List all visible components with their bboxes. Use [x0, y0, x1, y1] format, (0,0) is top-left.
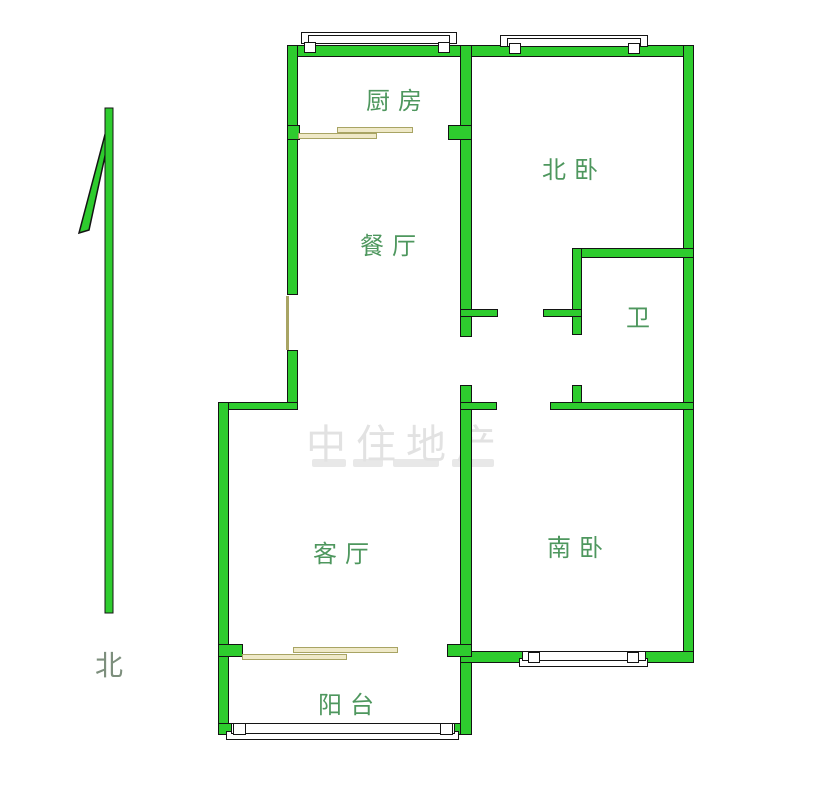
watermark-subtext-bar — [353, 459, 383, 467]
floor-plan: 中住地产 — [0, 0, 814, 800]
watermark-subtext-bar — [312, 459, 346, 467]
wall-north-bedroom-door-jamb-left — [460, 309, 498, 317]
north-arrow — [70, 100, 130, 620]
window-pane — [231, 723, 455, 734]
window-post — [438, 42, 450, 53]
window-post — [627, 652, 639, 663]
wall-left-lower — [218, 402, 229, 735]
wall-central-upper — [460, 45, 472, 337]
wall-hall-south-right — [550, 402, 694, 410]
wall-left-upper — [287, 45, 298, 295]
room-label-dining: 餐厅 — [360, 233, 424, 261]
window-post — [509, 43, 521, 54]
kitchen-sliding-door-lower — [298, 133, 377, 139]
wall-bathroom-west — [572, 248, 582, 335]
north-arrow-shaft — [105, 108, 113, 613]
wall-north-bedroom-door-jamb-right — [543, 309, 582, 317]
room-label-bathroom: 卫 — [626, 305, 658, 333]
dining-door-leaf — [286, 296, 289, 350]
wall-left-mid — [287, 350, 298, 410]
wall-step — [218, 402, 298, 410]
wall-balcony-divider-left — [218, 644, 243, 657]
room-label-north-bedroom: 北卧 — [542, 157, 606, 185]
wall-central-lower — [460, 385, 472, 735]
compass-north-label: 北 — [95, 644, 123, 684]
room-label-south-bedroom: 南卧 — [547, 535, 611, 563]
watermark-subtext-bar — [452, 459, 494, 467]
wall-bathroom-top — [572, 248, 694, 258]
balcony-sliding-door-upper — [293, 647, 398, 653]
room-label-kitchen: 厨房 — [366, 88, 430, 116]
window-post — [628, 43, 640, 54]
wall-balcony-divider-right — [447, 644, 472, 657]
window-post — [233, 723, 246, 735]
window-post — [528, 652, 540, 663]
wall-hall-south-left — [460, 402, 497, 410]
window-pane — [308, 35, 450, 44]
room-label-living: 客厅 — [313, 541, 377, 569]
watermark-subtext-bar — [393, 459, 439, 467]
wall-right — [683, 45, 694, 663]
room-label-balcony: 阳台 — [318, 692, 382, 720]
wall-kitchen-door-jamb-right — [448, 125, 472, 140]
balcony-sliding-door-lower — [242, 654, 347, 660]
window-pane — [507, 38, 641, 47]
window-post — [440, 723, 453, 735]
window-post — [304, 42, 316, 53]
